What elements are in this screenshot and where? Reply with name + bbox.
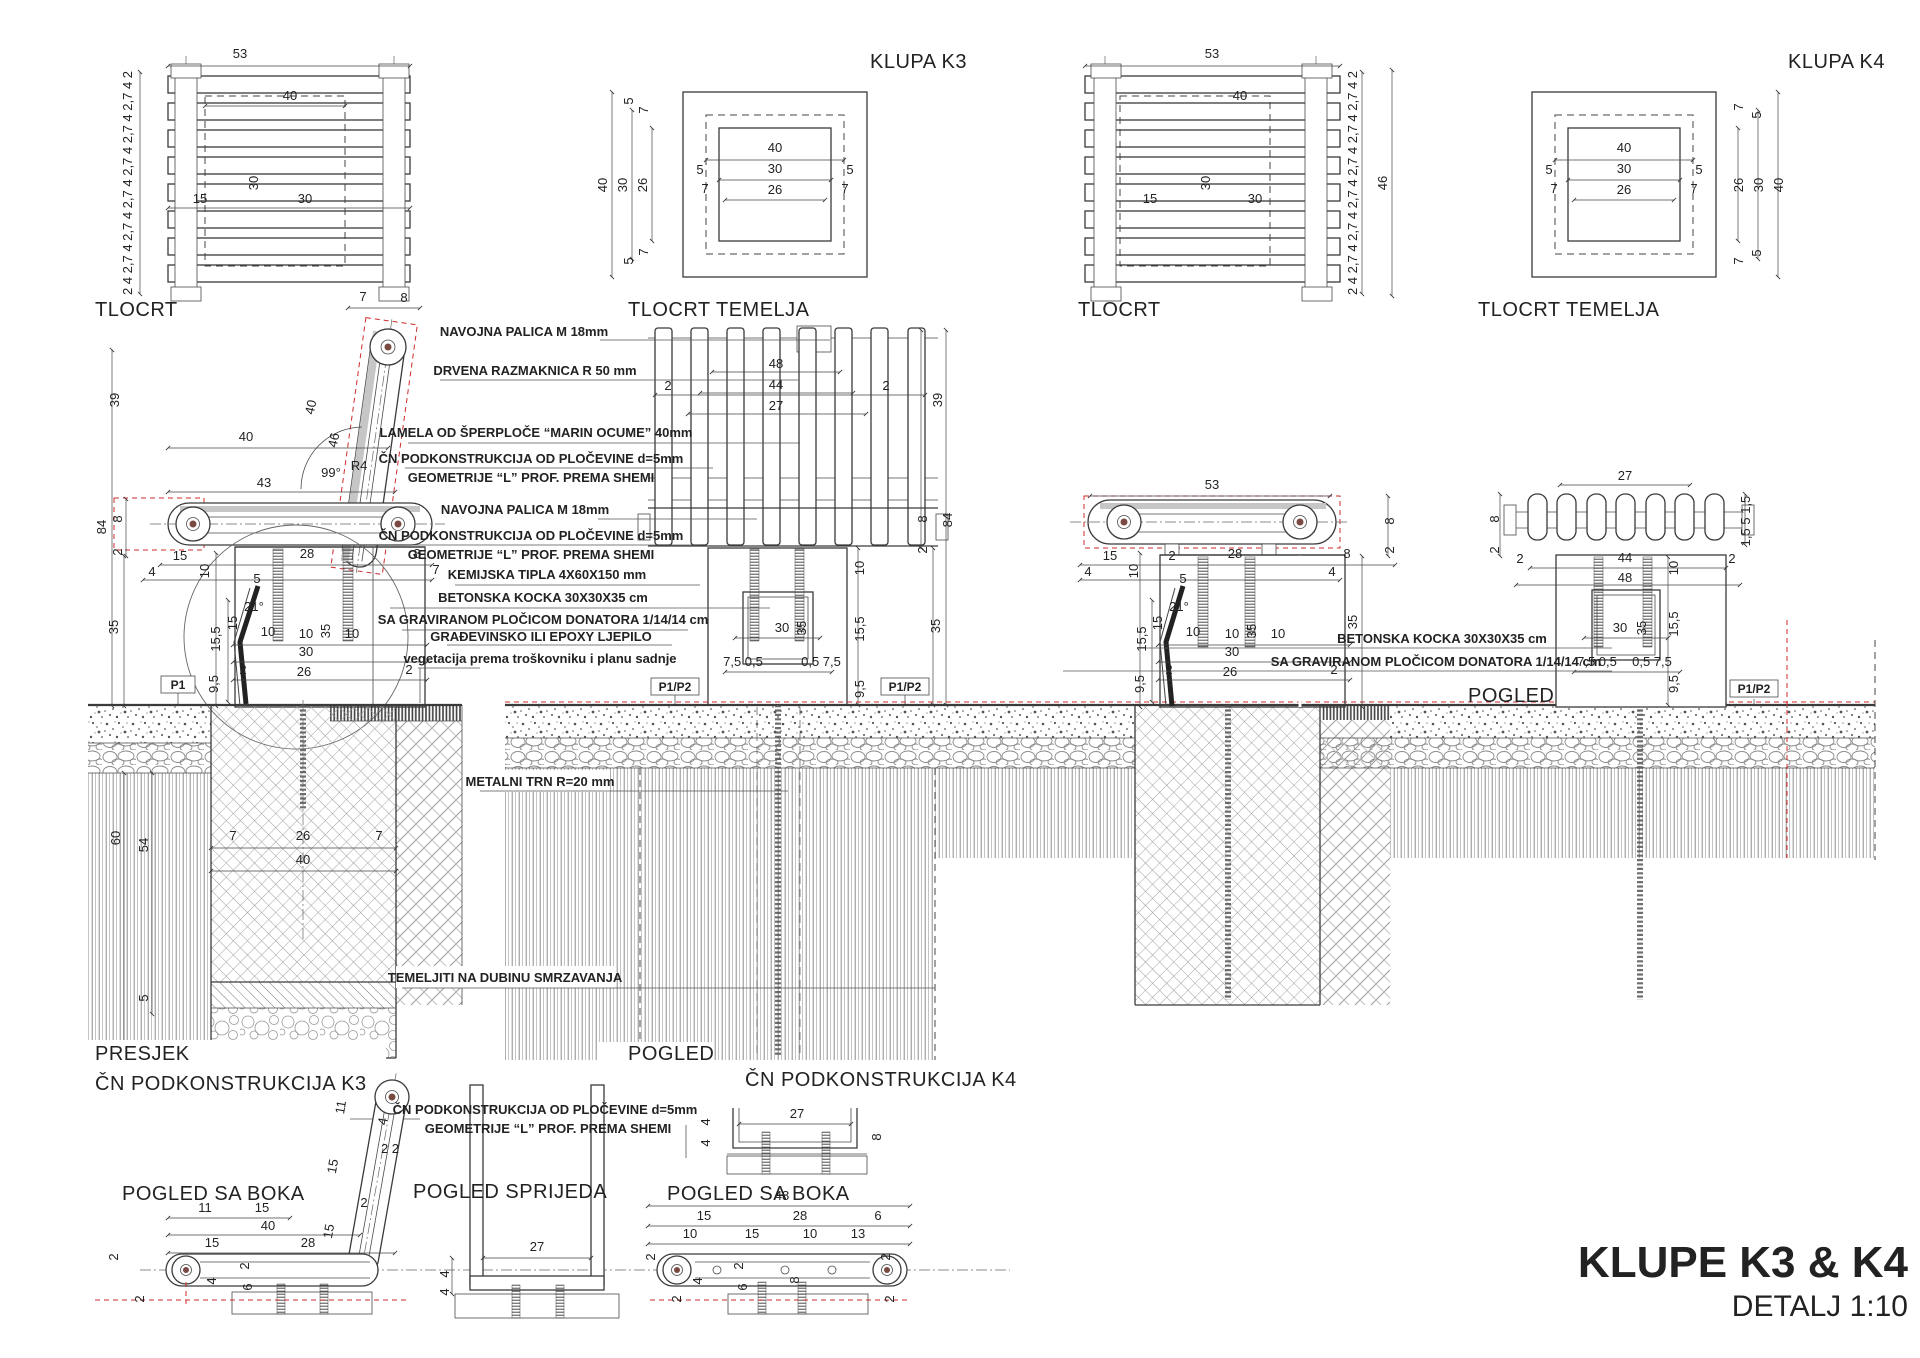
- dim-text: 5: [1179, 571, 1186, 586]
- dim-text: 5: [621, 257, 636, 264]
- cad-drawing: P1 P1/P2: [0, 0, 1920, 1358]
- dim-text: 8: [413, 546, 420, 561]
- dim-text: 7: [229, 828, 236, 843]
- dim-text: 1,5 5 1,5: [1738, 496, 1753, 547]
- dim-text: 15,5: [1666, 611, 1681, 636]
- dim-text: 2: [1728, 551, 1735, 566]
- dim-text: 39: [107, 393, 122, 407]
- dim-text: 7: [841, 181, 848, 196]
- dim-text: 4: [437, 1288, 452, 1295]
- dim-text: 6: [874, 1208, 881, 1223]
- dim-text: 30: [1613, 620, 1627, 635]
- p1p2-tag: P1/P2: [881, 678, 929, 705]
- dim-text: 53: [233, 46, 247, 61]
- dim-text: 26: [1223, 664, 1237, 679]
- dim-text: 8: [400, 290, 407, 305]
- dim-text: 15: [193, 191, 207, 206]
- dim-text: 2: [1168, 548, 1175, 563]
- k4-front-view: P1/P2: [1500, 485, 1778, 707]
- k3-front-view: P1/P2 P1/P2: [638, 326, 948, 705]
- dim-text: 40: [296, 852, 310, 867]
- callout-cn-plocevine-1a: ČN PODKONSTRUKCIJA OD PLOČEVINE d=5mm: [379, 451, 684, 466]
- dim-text: 35: [1345, 615, 1360, 629]
- dim-text: 5: [1695, 162, 1702, 177]
- dim-text: 40: [1233, 88, 1247, 103]
- dim-text: 27: [790, 1106, 804, 1121]
- dim-text: 4: [204, 1277, 219, 1284]
- dim-text: 30: [615, 178, 630, 192]
- callout-metalni: METALNI TRN R=20 mm: [466, 774, 615, 789]
- label-k4-frame: ČN PODKONSTRUKCIJA K4: [745, 1068, 1017, 1091]
- dim-text: 6: [240, 1283, 255, 1290]
- dim-text: 54: [136, 838, 151, 852]
- dim-text: 2: [669, 1295, 684, 1302]
- dim-text: 5: [846, 162, 853, 177]
- dim-text: 4: [690, 1277, 705, 1284]
- dim-text: 2: [1516, 551, 1523, 566]
- dim-text: 7: [1731, 103, 1746, 110]
- dim-text: 35: [1634, 621, 1649, 635]
- dim-text: 26: [768, 182, 782, 197]
- callout-kemijska: KEMIJSKA TIPLA 4X60X150 mm: [448, 567, 646, 582]
- dim-text: 8: [869, 1133, 884, 1140]
- dim-text: 2: [132, 1295, 147, 1302]
- dim-text: 15: [1103, 548, 1117, 563]
- dim-text: 2 4 2,7 4 2,7 4 2,7 4 2,7 4 2,7 4 2,7 4 …: [120, 71, 135, 295]
- p1-tag-label: P1: [171, 678, 186, 692]
- dim-text: 15: [205, 1235, 219, 1250]
- dim-text: 4: [698, 1118, 713, 1125]
- dim-text: 35: [928, 619, 943, 633]
- k4-front-slat-ends: [1528, 494, 1724, 540]
- dim-text: 10: [299, 626, 313, 641]
- p1p2-tag-label: P1/P2: [659, 680, 692, 694]
- footing: [232, 1292, 372, 1314]
- p1p2-tag: P1/P2: [651, 678, 699, 705]
- dim-text: 26: [297, 664, 311, 679]
- dim-text: 2: [1165, 662, 1172, 677]
- dim-text: 2: [1330, 662, 1337, 677]
- label-k4-side: POGLED SA BOKA: [667, 1183, 850, 1205]
- dim-text: 44: [1618, 550, 1632, 565]
- dim-text: 4: [1084, 564, 1091, 579]
- sheet-title: KLUPE K3 & K4: [1578, 1238, 1909, 1287]
- dim-text: 7: [701, 181, 708, 196]
- label-k3-plan: TLOCRT: [95, 299, 178, 321]
- dim-text: 11: [198, 1200, 212, 1215]
- dim-text: 2 2: [381, 1141, 399, 1156]
- dim-text: 30: [1617, 161, 1631, 176]
- dim-text: R4: [351, 458, 368, 473]
- dim-text: 7: [375, 828, 382, 843]
- callout-navojna-1: NAVOJNA PALICA M 18mm: [440, 324, 608, 339]
- dim-text: 2: [237, 1262, 252, 1269]
- label-k4-name: KLUPA K4: [1788, 51, 1885, 73]
- dim-text: 26: [1617, 182, 1631, 197]
- callout-betonska: BETONSKA KOCKA 30X30X35 cm: [438, 590, 648, 605]
- label-k4-front: POGLED: [1468, 685, 1554, 707]
- dim-text: 0,5 7,5: [1632, 654, 1672, 669]
- label-frame-front: POGLED SPRIJEDA: [413, 1181, 607, 1203]
- dim-text: 4: [1328, 564, 1335, 579]
- dim-text: 10: [852, 561, 867, 575]
- dim-text: 5: [621, 97, 636, 104]
- dim-text: 15: [1143, 191, 1157, 206]
- dim-text: 2: [1382, 546, 1397, 553]
- dim-text: 28: [300, 546, 314, 561]
- dim-text: 5: [253, 571, 260, 586]
- dim-text: 53: [1205, 46, 1219, 61]
- dim-text: 10: [803, 1226, 817, 1241]
- callout-navojna-2: NAVOJNA PALICA M 18mm: [441, 502, 609, 517]
- dim-text: 10: [1126, 564, 1141, 578]
- dim-text: 8: [1382, 517, 1397, 524]
- dim-text: 35: [106, 620, 121, 634]
- title-block: KLUPE K3 & K4 DETALJ 1:10: [1578, 1238, 1909, 1323]
- dim-text: 15: [255, 1200, 269, 1215]
- dim-text: 7: [359, 289, 366, 304]
- dim-text: 84: [94, 520, 109, 534]
- dim-text: 2: [731, 1262, 746, 1269]
- dim-text: 27: [530, 1239, 544, 1254]
- k3-plan-slats: [168, 76, 410, 282]
- callout-lamela: LAMELA OD ŠPERPLOČE “MARIN OCUME” 40mm: [380, 425, 693, 440]
- dim-text: 2: [239, 662, 246, 677]
- dim-text: 40: [1771, 178, 1786, 192]
- dim-text: 7: [636, 248, 651, 255]
- dim-text: 10: [1271, 626, 1285, 641]
- dim-text: 40: [261, 1218, 275, 1233]
- dim-text: 84: [940, 513, 955, 527]
- dim-text: 48: [769, 356, 783, 371]
- dim-text: 7,5 0,5: [723, 654, 763, 669]
- dim-text: 7: [432, 562, 439, 577]
- dim-text: 7: [636, 106, 651, 113]
- dim-text: 48: [1618, 570, 1632, 585]
- dim-text: 0,5 7,5: [801, 654, 841, 669]
- dim-text: 7: [1731, 257, 1746, 264]
- callout-cn-plocevine-3a: ČN PODKONSTRUKCIJA OD PLOČEVINE d=5mm: [393, 1102, 698, 1117]
- footing: [727, 1156, 867, 1174]
- dim-text: 26: [296, 828, 310, 843]
- dim-text: 4: [698, 1139, 713, 1146]
- dim-text: 2: [878, 1253, 893, 1260]
- callout-ljepilo: GRAĐEVINSKO ILI EPOXY LJEPILO: [430, 629, 652, 644]
- dim-text: 35: [318, 624, 333, 638]
- ground-strip-k3-section: [86, 700, 462, 1098]
- callout-betonska-k4: BETONSKA KOCKA 30X30X35 cm: [1337, 631, 1547, 646]
- dim-text: 11: [332, 1099, 349, 1115]
- dim-text: 15: [173, 548, 187, 563]
- label-k3-frame: ČN PODKONSTRUKCIJA K3: [95, 1072, 367, 1095]
- callout-gravirana: SA GRAVIRANOM PLOČICOM DONATORA 1/14/14 …: [378, 612, 709, 627]
- dim-text: 30: [768, 161, 782, 176]
- dim-text: 2: [915, 546, 930, 553]
- dim-text: 15,5: [1134, 626, 1149, 651]
- label-k4-plan: TLOCRT: [1078, 299, 1161, 321]
- dim-text: 30: [1751, 178, 1766, 192]
- dim-text: 28: [301, 1235, 315, 1250]
- dim-text: 5: [1749, 249, 1764, 256]
- callout-temeljiti: TEMELJITI NA DUBINU SMRZAVANJA: [388, 970, 623, 985]
- k4-side-view: [648, 1206, 910, 1314]
- callout-cn-plocevine-2a: ČN PODKONSTRUKCIJA OD PLOČEVINE d=5mm: [379, 528, 684, 543]
- dim-text: 8: [1343, 546, 1350, 561]
- dim-text: 2: [106, 1253, 121, 1260]
- dim-text: 9,5: [852, 680, 867, 698]
- dim-text: 6: [735, 1283, 750, 1290]
- dim-text: 28: [793, 1208, 807, 1223]
- dim-text: 2: [360, 1195, 367, 1210]
- p1p2-tag-label: P1/P2: [1738, 682, 1771, 696]
- label-k3-section: PRESJEK: [95, 1043, 190, 1065]
- dim-text: 10: [1666, 561, 1681, 575]
- dim-text: 40: [239, 429, 253, 444]
- dim-text: 8: [1487, 515, 1502, 522]
- dim-text: 15: [697, 1208, 711, 1223]
- dim-text: 40: [768, 140, 782, 155]
- dim-text: 7,5 0,5: [1577, 654, 1617, 669]
- label-k3-side: POGLED SA BOKA: [122, 1183, 305, 1205]
- label-k3-foundation-plan: TLOCRT TEMELJA: [628, 299, 810, 321]
- dim-text: 27: [769, 398, 783, 413]
- dim-text: 2 4 2,7 4 2,7 4 2,7 4 2,7 4 2,7 4 2,7 4 …: [1345, 71, 1360, 295]
- dim-text: 15: [1150, 616, 1165, 630]
- p1p2-tag-label: P1/P2: [889, 680, 922, 694]
- dim-text: 30: [298, 191, 312, 206]
- dim-text: 40: [302, 398, 320, 415]
- label-k3-name: KLUPA K3: [870, 51, 967, 73]
- dim-text: 30: [1248, 191, 1262, 206]
- dim-text: 4: [148, 564, 155, 579]
- dim-text: 21°: [1169, 599, 1189, 614]
- k3-front-slats: [655, 328, 925, 545]
- p1-tag: P1: [161, 676, 195, 705]
- dim-text: 15: [745, 1226, 759, 1241]
- dim-text: 8: [915, 515, 930, 522]
- dim-text: 8: [787, 1276, 802, 1283]
- drawing-sheet: P1 P1/P2: [0, 0, 1920, 1358]
- callout-cn-plocevine-3b: GEOMETRIJE “L” PROF. PREMA SHEMI: [425, 1121, 672, 1136]
- dim-text: 2: [882, 378, 889, 393]
- dim-text: 10: [197, 564, 212, 578]
- callout-cn-plocevine-1b: GEOMETRIJE “L” PROF. PREMA SHEMI: [408, 470, 655, 485]
- label-k3-front: POGLED: [628, 1043, 714, 1065]
- dim-text: 15,5: [852, 616, 867, 641]
- dim-text: 30: [299, 644, 313, 659]
- dim-text: 15,5: [208, 626, 223, 651]
- dim-text: 44: [769, 377, 783, 392]
- dim-text: 40: [595, 178, 610, 192]
- dim-text: 5: [1749, 111, 1764, 118]
- dim-text: 35: [1244, 624, 1259, 638]
- dim-text: 35: [794, 621, 809, 635]
- dim-text: 26: [635, 178, 650, 192]
- callout-gravirana-k4: SA GRAVIRANOM PLOČICOM DONATORA 1/14/14 …: [1271, 654, 1602, 669]
- dim-text: 10: [1186, 624, 1200, 639]
- dim-text: 9,5: [206, 675, 221, 693]
- dim-text: 5: [136, 994, 151, 1001]
- dim-text: 40: [1617, 140, 1631, 155]
- dim-text: 46: [325, 431, 343, 448]
- dim-text: 8: [110, 515, 125, 522]
- sheet-scale: DETALJ 1:10: [1732, 1290, 1908, 1323]
- dim-text: 7: [1550, 181, 1557, 196]
- dim-text: 2: [1487, 546, 1502, 553]
- p1p2-tag: P1/P2: [1730, 680, 1778, 705]
- dim-text: 46: [1375, 176, 1390, 190]
- dim-text: 2: [405, 662, 412, 677]
- dim-text: 5: [1545, 162, 1552, 177]
- k3-plan-view: [140, 56, 410, 302]
- dim-text: 15: [324, 1158, 341, 1175]
- dim-text: 9,5: [1132, 675, 1147, 693]
- dim-text: 15: [225, 616, 240, 630]
- k4-seat: [1070, 500, 1350, 555]
- dim-text: 48: [775, 1188, 789, 1203]
- callout-vegetacija: vegetacija prema troškovniku i planu sad…: [403, 651, 676, 666]
- dim-text: 2: [882, 1295, 897, 1302]
- dim-text: 2: [110, 548, 125, 555]
- dim-text: 2: [664, 378, 671, 393]
- dim-text: 7: [1690, 181, 1697, 196]
- callout-drvena: DRVENA RAZMAKNICA R 50 mm: [433, 363, 636, 378]
- dim-text: 30: [775, 620, 789, 635]
- callout-cn-plocevine-2b: GEOMETRIJE “L” PROF. PREMA SHEMI: [408, 547, 655, 562]
- dim-text: 30: [1198, 176, 1213, 190]
- dim-text: 30: [246, 176, 261, 190]
- dim-text: 53: [1205, 477, 1219, 492]
- dim-text: 21°: [244, 599, 264, 614]
- dim-text: 30: [1225, 644, 1239, 659]
- dim-text: 10: [1225, 626, 1239, 641]
- dim-text: 15: [320, 1223, 337, 1240]
- dim-text: 13: [851, 1226, 865, 1241]
- dim-text: 27: [1618, 468, 1632, 483]
- dim-text: 10: [261, 624, 275, 639]
- footing: [455, 1294, 619, 1318]
- dim-text: 43: [257, 475, 271, 490]
- dim-text: 40: [283, 88, 297, 103]
- dim-text: 99°: [321, 465, 341, 480]
- dim-text: 10: [683, 1226, 697, 1241]
- dim-text: 28: [1228, 546, 1242, 561]
- dim-text: 39: [930, 393, 945, 407]
- dim-text: 60: [108, 831, 123, 845]
- dim-text: 2: [643, 1253, 658, 1260]
- dim-text: 5: [696, 162, 703, 177]
- dim-text: 26: [1731, 178, 1746, 192]
- dim-text: 10: [345, 626, 359, 641]
- dim-text: 9,5: [1666, 675, 1681, 693]
- dim-text: 4: [437, 1270, 452, 1277]
- label-k4-foundation-plan: TLOCRT TEMELJA: [1478, 299, 1660, 321]
